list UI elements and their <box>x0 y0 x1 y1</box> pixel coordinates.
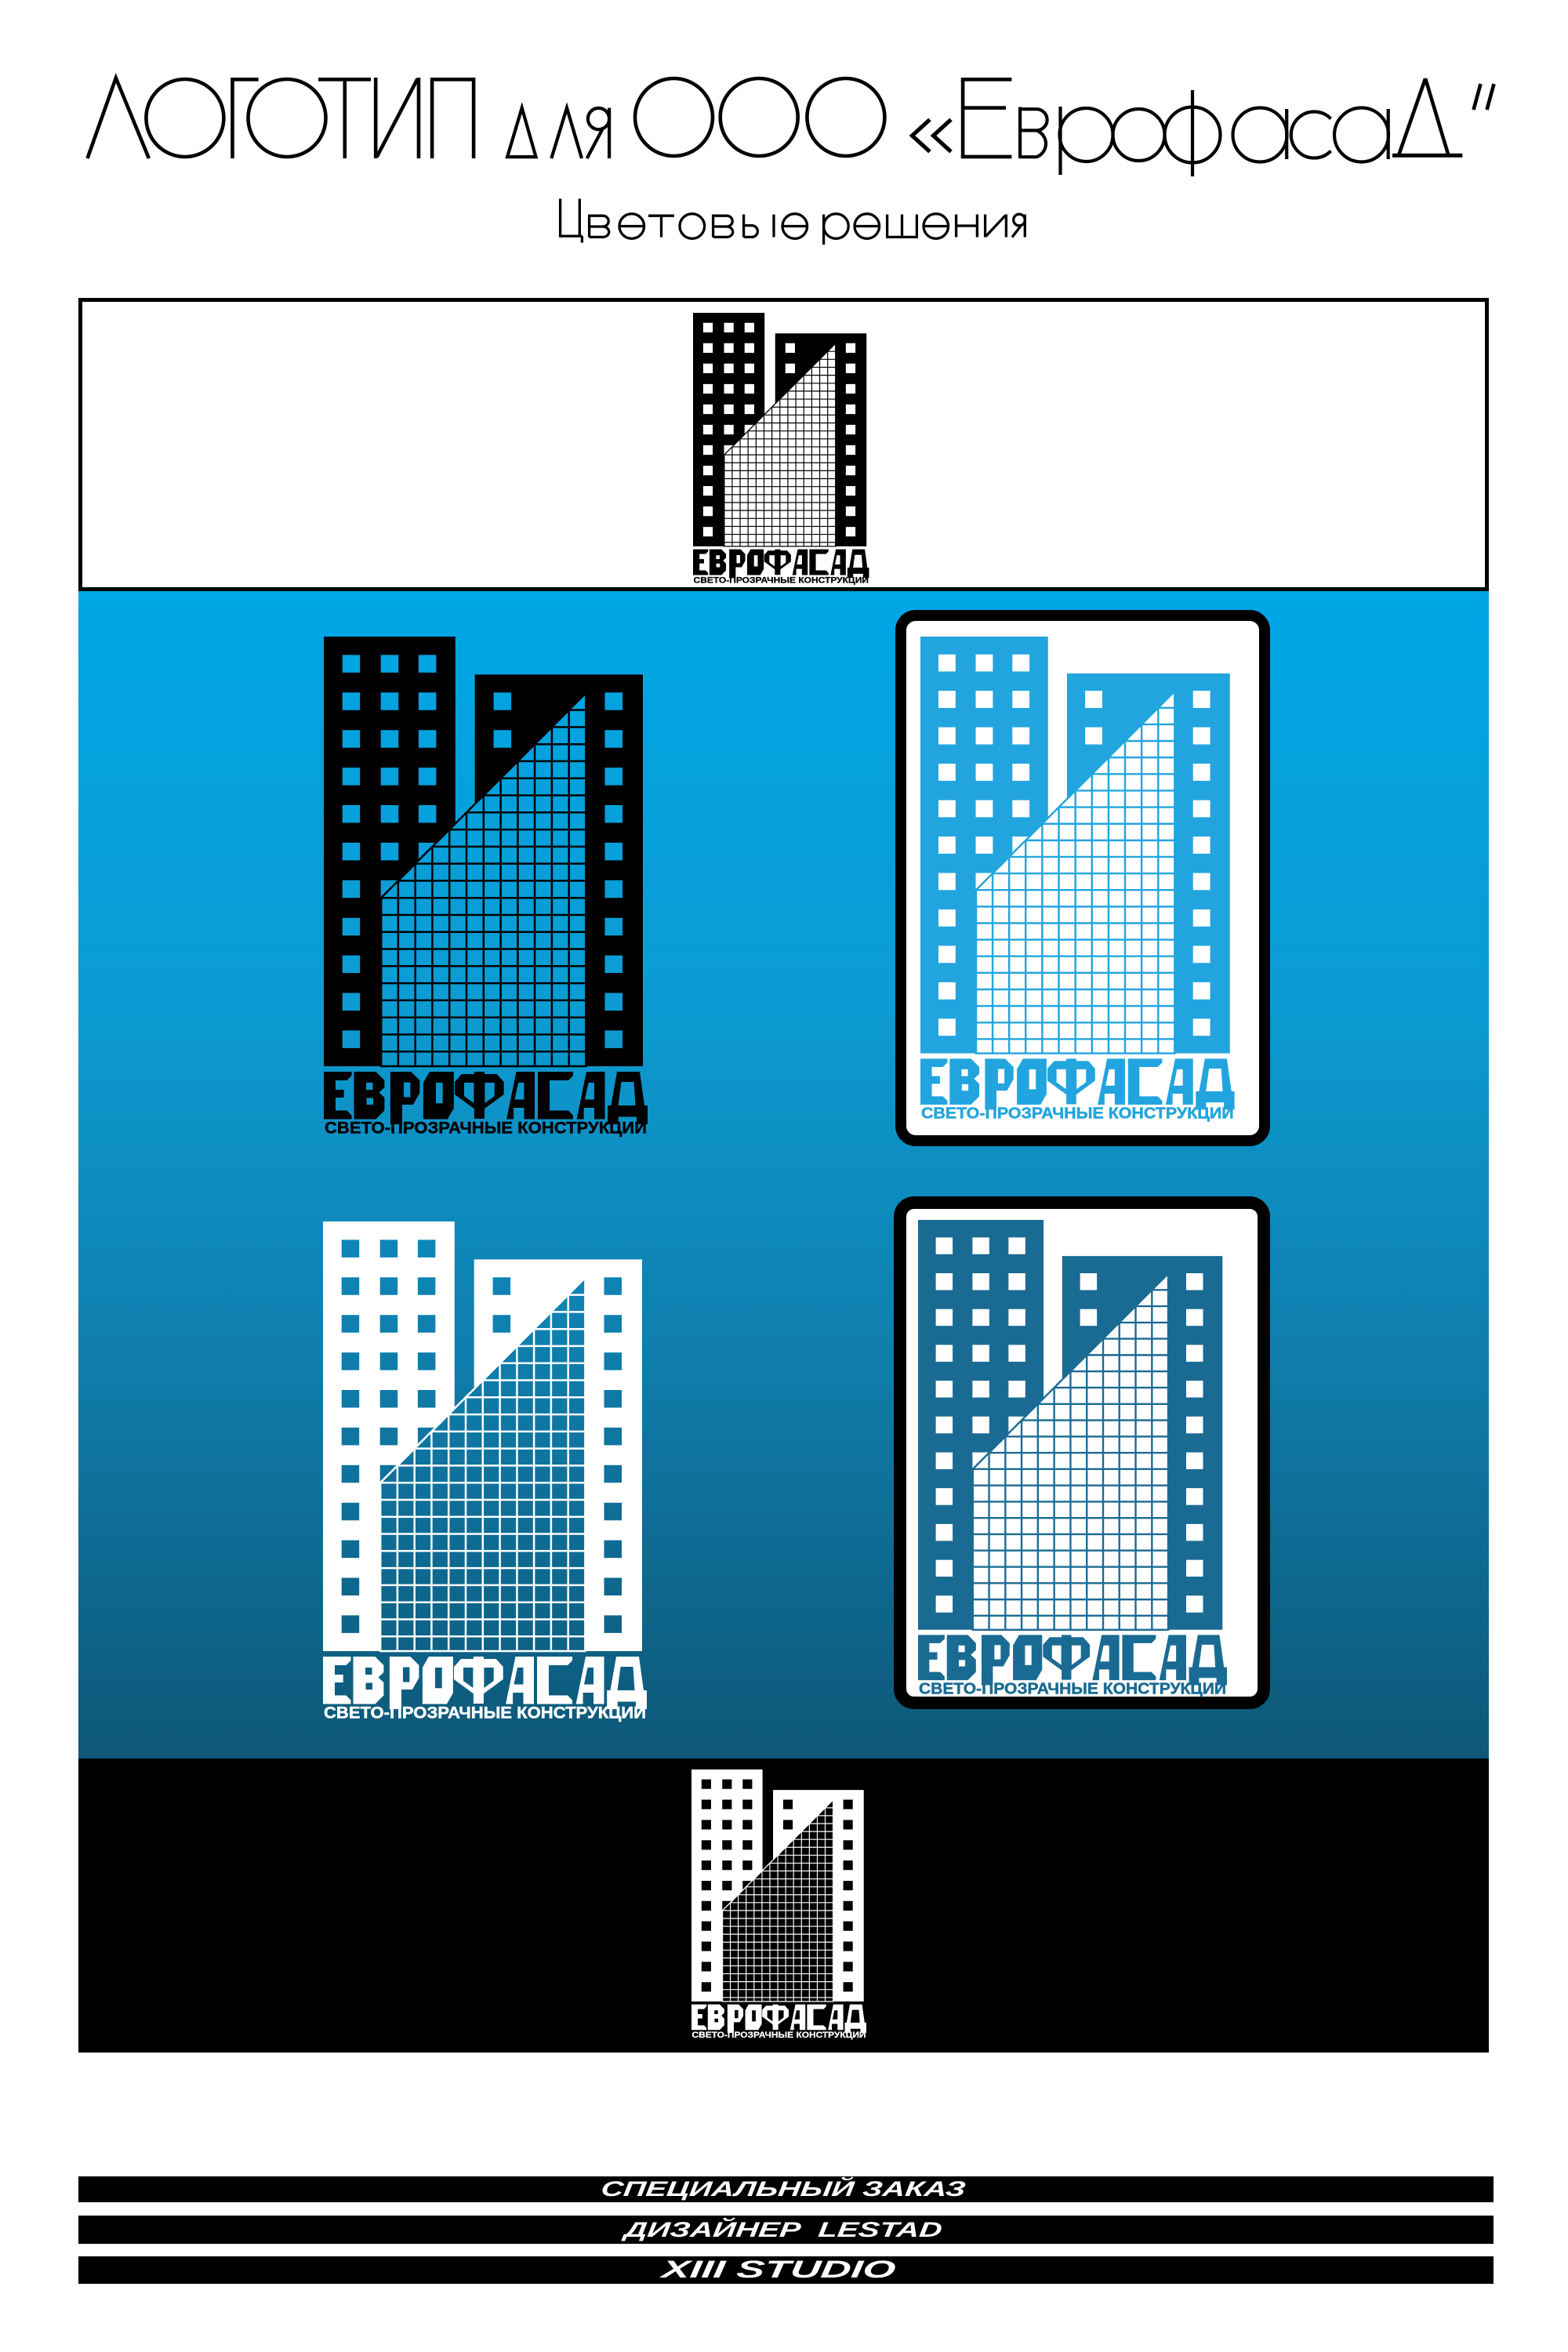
svg-text:ДИЗАЙНЕР LESTAD: ДИЗАЙНЕР LESTAD <box>621 2216 943 2241</box>
svg-text:XIII STUDIO: XIII STUDIO <box>658 2256 897 2283</box>
svg-text:СПЕЦИАЛЬНЫЙ ЗАКАЗ: СПЕЦИАЛЬНЫЙ ЗАКАЗ <box>600 2176 967 2201</box>
